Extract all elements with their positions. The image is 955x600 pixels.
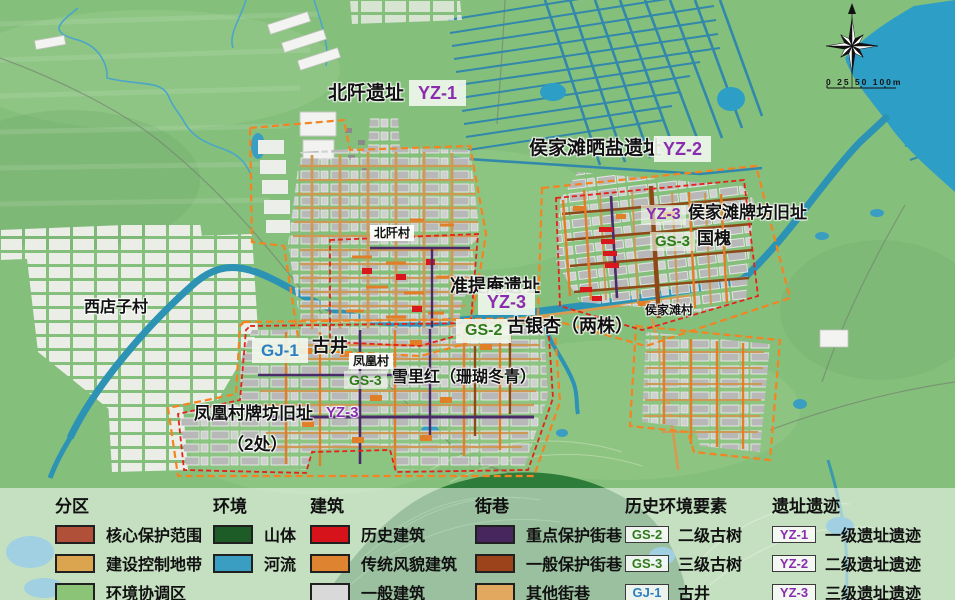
legend-label: 山体 <box>264 522 296 546</box>
legend-section-streets: 街巷 重点保护街巷 一般保护街巷 其他街巷 <box>475 492 622 600</box>
legend-item: YZ-2 二级遗址遗迹 <box>772 554 921 572</box>
legend-section-environment: 环境 山体 河流 <box>213 492 296 583</box>
legend-section-ruins: 遗址遗迹 YZ-1 一级遗址遗迹 YZ-2 二级遗址遗迹 YZ-3 三级遗址遗迹 <box>772 492 921 600</box>
legend-item: YZ-3 三级遗址遗迹 <box>772 583 921 600</box>
legend-section-historic-elements: 历史环境要素 GS-2 二级古树 GS-3 三级古树 GJ-1 古井 <box>625 492 742 600</box>
swatch-general-protected-street <box>475 554 515 573</box>
label-houjiatan-village: 侯家滩村 <box>645 304 693 316</box>
swatch-river <box>213 554 253 573</box>
swatch-construction-control <box>55 554 95 573</box>
legend-label: 二级遗址遗迹 <box>825 551 921 575</box>
label-guohuai: 国槐 <box>697 230 731 247</box>
legend-label: 河流 <box>264 551 296 575</box>
swatch-traditional-building <box>310 554 350 573</box>
swatch-environment-coordination <box>55 583 95 600</box>
swatch-ordinary-building <box>310 583 350 600</box>
legend-item: 其他街巷 <box>475 583 622 600</box>
legend-label: 一般建筑 <box>361 580 425 600</box>
badge-yz3-fenghuang-paifang: YZ-3 <box>326 405 359 420</box>
legend-item: 传统风貌建筑 <box>310 554 457 572</box>
legend-label: 重点保护街巷 <box>526 522 622 546</box>
legend-label: 三级古树 <box>678 551 742 575</box>
legend-section-buildings: 建筑 历史建筑 传统风貌建筑 一般建筑 <box>310 492 457 600</box>
label-beiqian-site: 北阡遗址 <box>328 84 404 103</box>
badge-gj1: GJ-1 <box>625 584 669 600</box>
badge-yz3-zhuntian: YZ-3 <box>478 289 535 315</box>
legend-item: 建设控制地带 <box>55 554 202 572</box>
legend-title-zones: 分区 <box>55 492 202 517</box>
legend-label: 二级古树 <box>678 522 742 546</box>
label-houjiatan-salt-site: 侯家滩晒盐遗址 <box>529 139 662 158</box>
legend-label: 一级遗址遗迹 <box>825 522 921 546</box>
legend-label: 建设控制地带 <box>106 551 202 575</box>
label-fenghuang-paifang-site: 凤凰村牌坊旧址 <box>194 405 313 422</box>
legend-label: 其他街巷 <box>526 580 590 600</box>
heritage-protection-map: 0 25 50 100m 北阡遗址 YZ-1 侯家滩晒盐遗址 YZ-2 YZ-3… <box>0 0 955 600</box>
scale-text: 0 25 50 100m <box>826 77 902 87</box>
badge-gs3-guohuai: GS-3 <box>650 232 695 251</box>
badge-yz3-houjiatan-paifang: YZ-3 <box>641 205 686 225</box>
swatch-historic-building <box>310 525 350 544</box>
badge-gj1-well: GJ-1 <box>252 338 308 363</box>
badge-gs3-xuelihong: GS-3 <box>344 371 387 389</box>
badge-yz2-houjiatan: YZ-2 <box>654 136 711 162</box>
label-beiqian-village: 北阡村 <box>370 225 414 241</box>
swatch-mountain <box>213 525 253 544</box>
legend-item: 环境协调区 <box>55 583 202 600</box>
legend-item: 河流 <box>213 554 296 572</box>
scale-bar: 0 25 50 100m <box>826 77 902 88</box>
label-fenghuang-paifang-count: （2处） <box>227 436 287 453</box>
label-xuelihong: 雪里红（珊瑚冬青） <box>392 370 536 386</box>
legend-item: GS-3 三级古树 <box>625 554 742 572</box>
badge-yz1: YZ-1 <box>772 526 816 543</box>
label-houjiatan-paifang-site: 侯家滩牌坊旧址 <box>688 204 807 221</box>
badge-yz1-beiqian: YZ-1 <box>409 80 466 106</box>
legend-item: YZ-1 一级遗址遗迹 <box>772 525 921 543</box>
badge-yz3: YZ-3 <box>772 584 816 600</box>
label-fenghuang-village: 凤凰村 <box>349 353 393 369</box>
badge-gs3: GS-3 <box>625 555 669 572</box>
label-xidianzi-village: 西店子村 <box>84 300 148 316</box>
legend-label: 核心保护范围 <box>106 522 202 546</box>
badge-gs2: GS-2 <box>625 526 669 543</box>
badge-gs2-ginkgo: GS-2 <box>456 319 511 343</box>
label-well: 古井 <box>312 337 348 355</box>
legend-title-streets: 街巷 <box>475 492 622 517</box>
legend-item: 一般保护街巷 <box>475 554 622 572</box>
legend-item: 山体 <box>213 525 296 543</box>
swatch-other-street <box>475 583 515 600</box>
legend-label: 古井 <box>678 580 710 600</box>
legend-item: 核心保护范围 <box>55 525 202 543</box>
label-ginkgo: 古银杏（两株） <box>507 317 633 335</box>
legend-title-historic-elements: 历史环境要素 <box>625 492 742 517</box>
legend-label: 环境协调区 <box>106 580 186 600</box>
legend-item: 历史建筑 <box>310 525 457 543</box>
legend-label: 传统风貌建筑 <box>361 551 457 575</box>
legend-title-ruins: 遗址遗迹 <box>772 492 921 517</box>
legend-label: 一般保护街巷 <box>526 551 622 575</box>
legend-item: 一般建筑 <box>310 583 457 600</box>
legend-section-zones: 分区 核心保护范围 建设控制地带 环境协调区 <box>55 492 202 600</box>
legend-title-environment: 环境 <box>213 492 296 517</box>
legend-title-buildings: 建筑 <box>310 492 457 517</box>
swatch-core-protection <box>55 525 95 544</box>
legend-item: GS-2 二级古树 <box>625 525 742 543</box>
legend-label: 历史建筑 <box>361 522 425 546</box>
legend-item: GJ-1 古井 <box>625 583 742 600</box>
legend-item: 重点保护街巷 <box>475 525 622 543</box>
swatch-key-protected-street <box>475 525 515 544</box>
badge-yz2: YZ-2 <box>772 555 816 572</box>
legend-label: 三级遗址遗迹 <box>825 580 921 600</box>
